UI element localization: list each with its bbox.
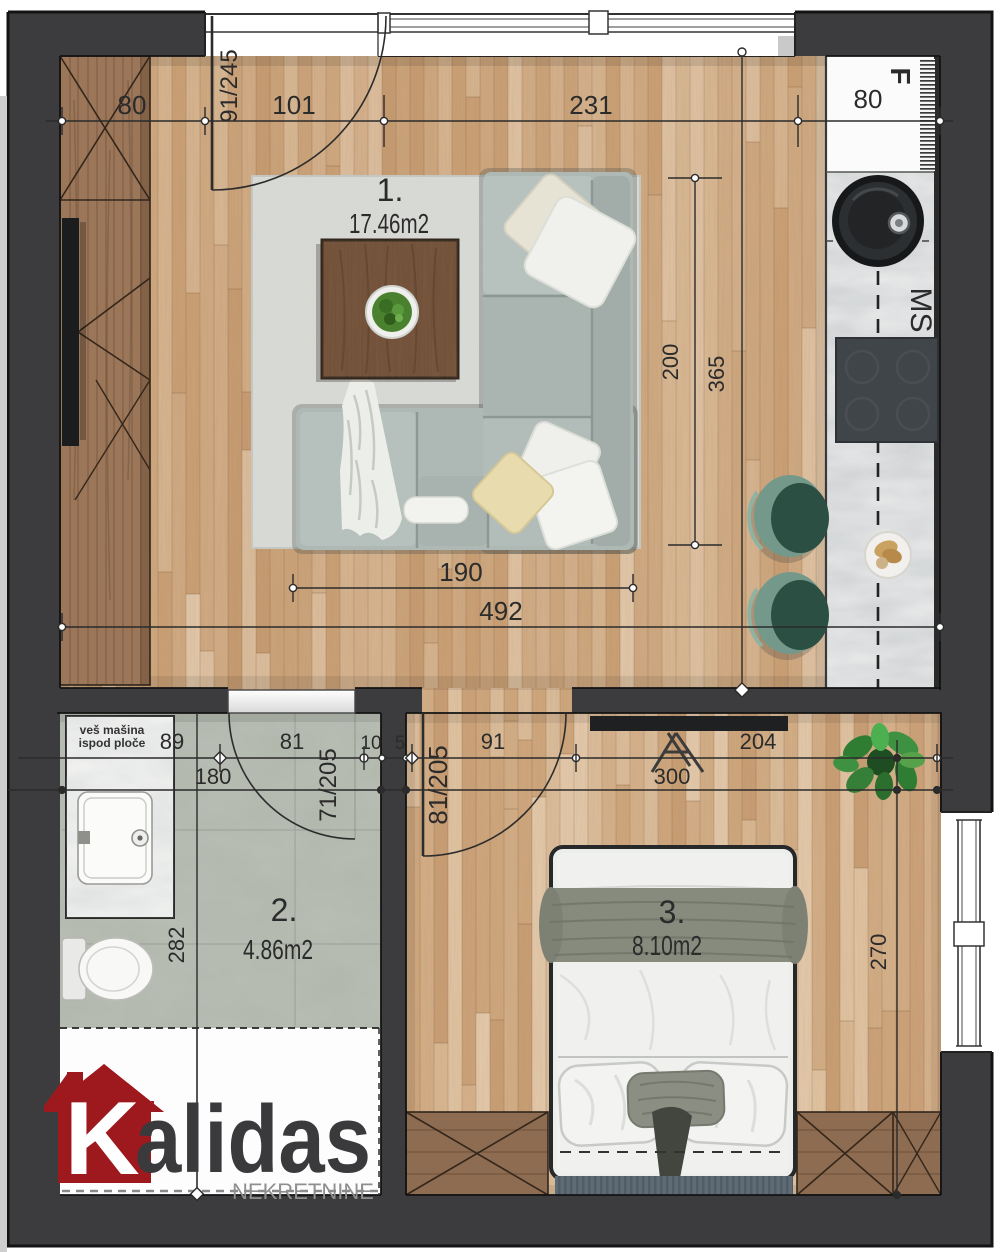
- svg-text:81/205: 81/205: [423, 745, 453, 825]
- svg-text:10: 10: [360, 733, 381, 754]
- svg-text:71/205: 71/205: [315, 748, 342, 821]
- svg-text:2.: 2.: [271, 892, 298, 928]
- svg-text:ispod ploče: ispod ploče: [79, 736, 146, 750]
- svg-text:200: 200: [658, 344, 683, 381]
- svg-text:17.46m2: 17.46m2: [349, 208, 429, 239]
- svg-text:alidas: alidas: [135, 1086, 371, 1193]
- svg-text:MS: MS: [904, 288, 937, 333]
- svg-text:365: 365: [704, 356, 729, 393]
- svg-text:204: 204: [740, 729, 777, 754]
- svg-text:1.: 1.: [377, 172, 404, 208]
- svg-text:89: 89: [160, 729, 184, 754]
- svg-text:81: 81: [280, 729, 304, 754]
- svg-text:231: 231: [569, 90, 612, 120]
- svg-text:veš mašina: veš mašina: [80, 723, 145, 737]
- svg-text:F: F: [885, 67, 916, 84]
- svg-text:180: 180: [195, 764, 232, 789]
- svg-text:3.: 3.: [659, 894, 686, 930]
- svg-text:101: 101: [272, 90, 315, 120]
- svg-text:80: 80: [854, 84, 883, 114]
- svg-text:270: 270: [866, 934, 891, 971]
- svg-text:80: 80: [118, 90, 147, 120]
- svg-text:NEKRETNINE: NEKRETNINE: [232, 1179, 374, 1204]
- svg-text:492: 492: [479, 596, 522, 626]
- svg-text:K: K: [64, 1081, 139, 1197]
- svg-text:282: 282: [164, 927, 189, 964]
- svg-text:4.86m2: 4.86m2: [243, 934, 313, 965]
- svg-text:91: 91: [481, 729, 505, 754]
- svg-text:8.10m2: 8.10m2: [632, 930, 702, 961]
- svg-text:300: 300: [654, 764, 691, 789]
- svg-text:91/245: 91/245: [216, 49, 243, 122]
- svg-text:190: 190: [439, 557, 482, 587]
- svg-text:5: 5: [395, 733, 406, 754]
